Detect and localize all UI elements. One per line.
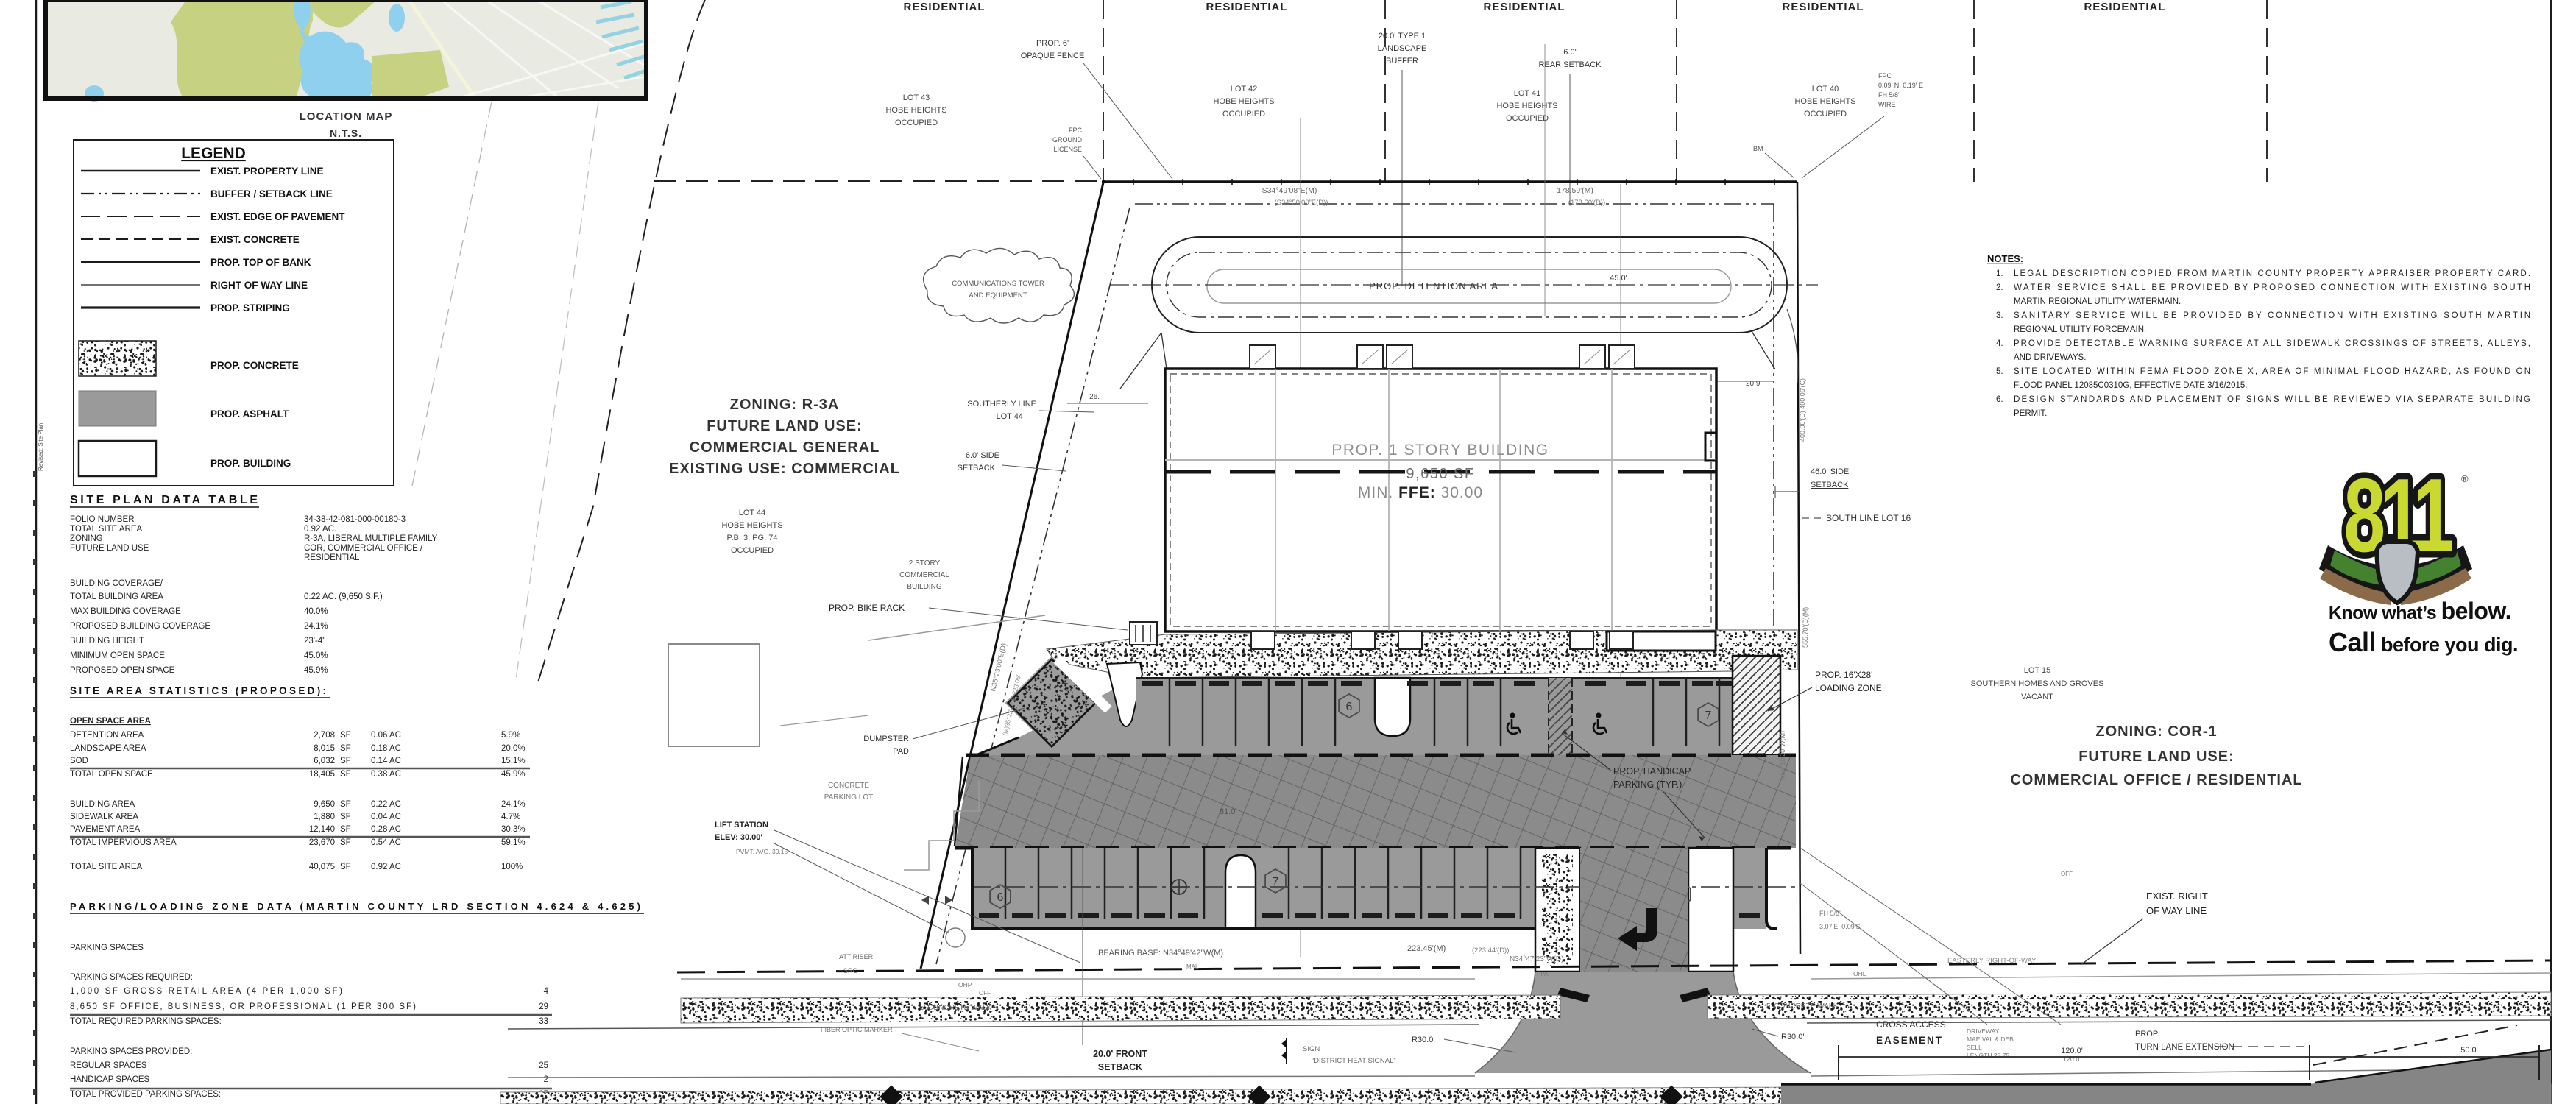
svg-text:6.0': 6.0' — [1563, 48, 1576, 57]
svg-text:24.1%: 24.1% — [304, 622, 328, 631]
svg-text:400.00'(D) 400.06'(C): 400.00'(D) 400.06'(C) — [1799, 378, 1806, 442]
svg-text:CONCRETE: CONCRETE — [828, 782, 869, 790]
svg-text:(178.60'(D)): (178.60'(D)) — [1568, 199, 1605, 207]
svg-text:OFF: OFF — [2061, 871, 2073, 877]
svg-text:EASEMENT: EASEMENT — [1876, 1035, 1943, 1046]
svg-text:5' CONCRETE WALK: 5' CONCRETE WALK — [920, 1004, 991, 1012]
svg-text:“DISTRICT HEAT SIGNAL”: “DISTRICT HEAT SIGNAL” — [1312, 1057, 1396, 1065]
svg-text:PROP. 16'X28': PROP. 16'X28' — [1815, 670, 1872, 680]
svg-text:ELEV: 30.00': ELEV: 30.00' — [715, 833, 762, 842]
svg-text:81.0': 81.0' — [1220, 807, 1237, 816]
svg-text:TOTAL PROVIDED PARKING SPACES:: TOTAL PROVIDED PARKING SPACES: — [70, 1090, 221, 1099]
svg-text:223.45'(M): 223.45'(M) — [1407, 944, 1446, 953]
svg-text:FH 5/8": FH 5/8" — [1878, 91, 1900, 99]
svg-text:LOT 44: LOT 44 — [997, 412, 1024, 421]
svg-text:VACANT: VACANT — [2021, 693, 2053, 701]
svg-text:0.92 AC: 0.92 AC — [371, 863, 401, 871]
svg-text:34-38-42-081-000-00180-3: 34-38-42-081-000-00180-3 — [304, 515, 406, 524]
svg-text:0.38 AC: 0.38 AC — [371, 770, 401, 779]
svg-text:2 STORY: 2 STORY — [909, 559, 941, 567]
svg-text:OCCUPIED: OCCUPIED — [1506, 114, 1549, 123]
svg-text:SRC: SRC — [843, 967, 858, 974]
svg-text:8,015: 8,015 — [314, 744, 335, 753]
svg-text:PARKING SPACES PROVIDED:: PARKING SPACES PROVIDED: — [70, 1047, 192, 1056]
svg-text:45.9%: 45.9% — [501, 770, 526, 779]
svg-text:OCCUPIED: OCCUPIED — [1804, 110, 1847, 118]
svg-text:29: 29 — [539, 1002, 548, 1011]
svg-text:COMMERCIAL OFFICE / RESIDENTIA: COMMERCIAL OFFICE / RESIDENTIAL — [2010, 772, 2302, 788]
svg-text:LEGEND: LEGEND — [181, 145, 246, 162]
svg-text:7: 7 — [1705, 710, 1712, 722]
svg-text:PARKING (TYP.): PARKING (TYP.) — [1613, 779, 1682, 790]
svg-text:REGULAR SPACES: REGULAR SPACES — [70, 1061, 147, 1070]
svg-text:LICENSE: LICENSE — [1053, 146, 1082, 153]
svg-text:45.0%: 45.0% — [304, 651, 328, 660]
svg-text:PROP. CONCRETE: PROP. CONCRETE — [210, 360, 299, 371]
svg-text:5.: 5. — [1996, 367, 2003, 376]
svg-text:PROP. 1 STORY BUILDING: PROP. 1 STORY BUILDING — [1331, 442, 1549, 459]
svg-text:RESIDENTIAL: RESIDENTIAL — [1206, 1, 1287, 13]
svg-text:LOT 15: LOT 15 — [2024, 666, 2051, 675]
svg-text:9,650: 9,650 — [314, 800, 335, 809]
svg-text:MARTIN REGIONAL UTILITY WATERM: MARTIN REGIONAL UTILITY WATERMAIN. — [2014, 297, 2181, 306]
svg-text:AND DRIVEWAYS.: AND DRIVEWAYS. — [2014, 353, 2086, 362]
svg-text:N.T.S.: N.T.S. — [330, 127, 362, 139]
svg-text:20.0' FRONT: 20.0' FRONT — [1093, 1049, 1147, 1059]
svg-text:18,405: 18,405 — [309, 770, 335, 779]
svg-text:OHL: OHL — [1853, 970, 1866, 977]
svg-text:SIGN: SIGN — [1303, 1045, 1320, 1053]
svg-text:REAR SETBACK: REAR SETBACK — [1539, 60, 1602, 69]
svg-text:FLOOD PANEL 12085C0310G, EFFEC: FLOOD PANEL 12085C0310G, EFFECTIVE DATE … — [2014, 381, 2247, 390]
svg-text:PROP. STRIPING: PROP. STRIPING — [210, 302, 290, 314]
svg-text:PROPOSED BUILDING COVERAGE: PROPOSED BUILDING COVERAGE — [70, 622, 210, 631]
svg-text:COMMERCIAL GENERAL: COMMERCIAL GENERAL — [690, 439, 880, 456]
svg-text:LANDSCAPE AREA: LANDSCAPE AREA — [70, 744, 146, 753]
svg-text:BUFFER: BUFFER — [1386, 57, 1418, 66]
svg-text:3.: 3. — [1996, 311, 2003, 320]
svg-text:SF: SF — [340, 800, 351, 809]
svg-text:RESIDENTIAL: RESIDENTIAL — [1483, 1, 1565, 13]
svg-text:20.0%: 20.0% — [501, 744, 526, 753]
svg-text:SF: SF — [340, 757, 351, 765]
svg-text:HOBE HEIGHTS: HOBE HEIGHTS — [1213, 97, 1274, 106]
svg-text:OHP: OHP — [958, 981, 972, 988]
svg-text:PROP. BIKE RACK: PROP. BIKE RACK — [829, 603, 905, 613]
svg-text:PROP. 6': PROP. 6' — [1036, 39, 1069, 48]
svg-text:EXIST. EDGE OF PAVEMENT: EXIST. EDGE OF PAVEMENT — [210, 211, 345, 222]
svg-text:7: 7 — [1273, 876, 1279, 888]
svg-text:R30.0': R30.0' — [1412, 1036, 1434, 1044]
svg-text:OCCUPIED: OCCUPIED — [731, 546, 774, 555]
svg-text:DRIVEWAY: DRIVEWAY — [1967, 1027, 2000, 1035]
svg-text:ZONING: R-3A: ZONING: R-3A — [730, 397, 840, 413]
svg-text:ATT RISER: ATT RISER — [839, 953, 874, 960]
svg-text:TOTAL IMPERVIOUS AREA: TOTAL IMPERVIOUS AREA — [70, 838, 177, 847]
svg-text:BUILDING: BUILDING — [907, 583, 941, 591]
svg-text:SF: SF — [340, 825, 351, 834]
svg-text:RESIDENTIAL: RESIDENTIAL — [304, 553, 360, 562]
svg-text:PAVEMENT AREA: PAVEMENT AREA — [70, 825, 141, 834]
svg-text:12,140: 12,140 — [309, 825, 335, 834]
svg-text:OPEN SPACE AREA: OPEN SPACE AREA — [70, 717, 151, 726]
svg-text:FPC: FPC — [1878, 72, 1892, 79]
svg-text:4.: 4. — [1996, 339, 2003, 348]
svg-text:4.7%: 4.7% — [501, 813, 520, 821]
svg-text:MINIMUM OPEN SPACE: MINIMUM OPEN SPACE — [70, 651, 165, 660]
svg-text:0.18 AC: 0.18 AC — [371, 744, 401, 753]
svg-text:TOTAL SITE AREA: TOTAL SITE AREA — [70, 863, 143, 871]
svg-text:6.0' SIDE: 6.0' SIDE — [966, 451, 999, 460]
svg-text:PROVIDE DETECTABLE WARNING SUR: PROVIDE DETECTABLE WARNING SURFACE AT AL… — [2014, 339, 2530, 348]
svg-text:6,032: 6,032 — [314, 757, 335, 765]
svg-text:555.70'(D)(M): 555.70'(D)(M) — [1802, 607, 1809, 648]
svg-text:LIFT STATION: LIFT STATION — [715, 821, 768, 829]
svg-text:HANDICAP SPACES: HANDICAP SPACES — [70, 1075, 150, 1084]
svg-text:TOTAL OPEN SPACE: TOTAL OPEN SPACE — [70, 770, 153, 779]
svg-text:59.1%: 59.1% — [501, 838, 526, 847]
svg-text:N34°47’23”W(D): N34°47’23”W(D) — [1510, 955, 1563, 963]
svg-text:S34°49’08”E(M): S34°49’08”E(M) — [1262, 186, 1317, 195]
svg-text:GROUND: GROUND — [1052, 136, 1082, 144]
svg-text:BUFFER / SETBACK LINE: BUFFER / SETBACK LINE — [210, 188, 333, 199]
svg-text:FPC: FPC — [1069, 127, 1083, 134]
svg-text:R-3A, LIBERAL MULTIPLE FAMILY: R-3A, LIBERAL MULTIPLE FAMILY — [304, 534, 438, 543]
svg-text:MIN. FFE: 30.00: MIN. FFE: 30.00 — [1358, 484, 1483, 501]
svg-text:COMMERCIAL: COMMERCIAL — [899, 571, 949, 579]
svg-text:SOUTH LINE LOT 16: SOUTH LINE LOT 16 — [1826, 513, 1911, 523]
svg-text:5' CONCRETE WALK: 5' CONCRETE WALK — [1766, 1002, 1838, 1011]
svg-text:HOBE HEIGHTS: HOBE HEIGHTS — [721, 521, 782, 530]
svg-text:NOTES:: NOTES: — [1987, 253, 2023, 264]
svg-text:LANDSCAPE: LANDSCAPE — [1378, 44, 1427, 53]
svg-text:SETBACK: SETBACK — [1811, 481, 1849, 489]
svg-text:ZONING: ZONING — [70, 534, 103, 543]
svg-text:FOLIO NUMBER: FOLIO NUMBER — [70, 515, 135, 524]
svg-text:1.: 1. — [1996, 269, 2003, 278]
svg-text:SF: SF — [340, 744, 351, 753]
svg-text:SF: SF — [340, 770, 351, 779]
svg-text:33: 33 — [539, 1017, 548, 1026]
svg-text:4: 4 — [544, 987, 549, 996]
svg-text:1,880: 1,880 — [314, 813, 335, 821]
svg-text:EXIST. PROPERTY LINE: EXIST. PROPERTY LINE — [210, 166, 324, 177]
svg-text:0.28 AC: 0.28 AC — [371, 825, 401, 834]
svg-text:RIGHT OF WAY LINE: RIGHT OF WAY LINE — [210, 280, 308, 291]
svg-text:120.0': 120.0' — [2061, 1047, 2083, 1055]
svg-text:20.0' TYPE 1: 20.0' TYPE 1 — [1379, 32, 1426, 40]
svg-text:FUTURE LAND USE:: FUTURE LAND USE: — [2078, 749, 2234, 765]
svg-text:0.09' N, 0.19' E: 0.09' N, 0.19' E — [1878, 82, 1923, 89]
svg-text:PROP. TOP OF BANK: PROP. TOP OF BANK — [210, 257, 311, 268]
svg-text:DETENTION AREA: DETENTION AREA — [70, 731, 144, 740]
svg-text:OCCUPIED: OCCUPIED — [1222, 110, 1265, 118]
svg-text:BUILDING COVERAGE/: BUILDING COVERAGE/ — [70, 579, 163, 588]
svg-text:50.0': 50.0' — [2460, 1046, 2478, 1055]
svg-text:(223.44'(D)): (223.44'(D)) — [1472, 946, 1509, 955]
svg-text:6: 6 — [1346, 701, 1353, 713]
svg-text:EXISTING USE: COMMERCIAL: EXISTING USE: COMMERCIAL — [669, 461, 900, 477]
svg-text:45.0': 45.0' — [1610, 274, 1627, 283]
svg-text:23,670: 23,670 — [309, 838, 335, 847]
svg-text:Revised: Site Plan: Revised: Site Plan — [38, 423, 44, 471]
svg-text:®: ® — [2461, 473, 2469, 484]
svg-text:EASTERLY RIGHT-OF-WAY: EASTERLY RIGHT-OF-WAY — [1947, 957, 2037, 965]
svg-text:TOTAL BUILDING AREA: TOTAL BUILDING AREA — [70, 592, 163, 601]
svg-text:RESIDENTIAL: RESIDENTIAL — [1782, 1, 1864, 13]
svg-text:BM: BM — [1753, 145, 1763, 152]
svg-text:PARKING SPACES REQUIRED:: PARKING SPACES REQUIRED: — [70, 973, 193, 982]
svg-text:REGIONAL UTILITY FORCEMAIN.: REGIONAL UTILITY FORCEMAIN. — [2014, 325, 2146, 334]
svg-text:FUTURE LAND USE:: FUTURE LAND USE: — [707, 418, 863, 434]
svg-text:SELL: SELL — [1967, 1044, 1982, 1051]
svg-text:BUILDING AREA: BUILDING AREA — [70, 800, 135, 809]
svg-text:PROP. ASPHALT: PROP. ASPHALT — [210, 408, 289, 420]
svg-text:0.06 AC: 0.06 AC — [371, 731, 401, 740]
svg-text:(S34°50’00”E(D)): (S34°50’00”E(D)) — [1275, 199, 1328, 207]
svg-text:2.: 2. — [1996, 283, 2003, 292]
svg-text:40.0%: 40.0% — [304, 607, 328, 616]
svg-text:PROP. DETENTION AREA: PROP. DETENTION AREA — [1369, 280, 1498, 291]
svg-text:26.: 26. — [1089, 393, 1100, 401]
svg-text:SOUTHERN HOMES AND GROVES: SOUTHERN HOMES AND GROVES — [1971, 679, 2104, 688]
svg-text:SETBACK: SETBACK — [1098, 1062, 1142, 1072]
svg-text:0.22 AC: 0.22 AC — [371, 800, 401, 809]
svg-text:P.B. 3, PG. 74: P.B. 3, PG. 74 — [727, 534, 778, 542]
svg-text:0.22 AC. (9,650 S.F.): 0.22 AC. (9,650 S.F.) — [304, 592, 383, 601]
svg-text:30.3%: 30.3% — [501, 825, 526, 834]
svg-text:SF: SF — [340, 838, 351, 847]
svg-text:6: 6 — [997, 891, 1004, 904]
svg-text:FUTURE LAND USE: FUTURE LAND USE — [70, 544, 149, 553]
svg-text:15.1%: 15.1% — [501, 757, 526, 765]
svg-text:PAD: PAD — [893, 747, 909, 756]
svg-text:OFF: OFF — [979, 990, 991, 997]
svg-text:40,075: 40,075 — [309, 863, 335, 871]
svg-text:OCCUPIED: OCCUPIED — [895, 118, 938, 127]
svg-text:LOT 40: LOT 40 — [1812, 85, 1839, 93]
svg-text:SETBACK: SETBACK — [958, 464, 996, 473]
svg-text:AND EQUIPMENT: AND EQUIPMENT — [969, 291, 1027, 300]
svg-text:100%: 100% — [501, 863, 523, 871]
svg-text:EXIST. CONCRETE: EXIST. CONCRETE — [210, 234, 300, 245]
svg-text:PARKING SPACES: PARKING SPACES — [70, 944, 144, 952]
svg-text:178.59'(M): 178.59'(M) — [1557, 186, 1593, 195]
svg-text:SITE PLAN DATA TABLE: SITE PLAN DATA TABLE — [70, 494, 258, 506]
svg-text:5.9%: 5.9% — [501, 731, 520, 740]
svg-text:MAE VAL & DEB: MAE VAL & DEB — [1967, 1036, 2014, 1043]
svg-text:SF: SF — [340, 863, 351, 871]
svg-text:R30.0': R30.0' — [1781, 1033, 1804, 1041]
svg-text:RESIDENTIAL: RESIDENTIAL — [2084, 1, 2165, 13]
svg-text:6.: 6. — [1996, 395, 2003, 404]
svg-text:PARKING/LOADING ZONE DATA (MAR: PARKING/LOADING ZONE DATA (MARTIN COUNTY… — [70, 901, 640, 912]
svg-text:HOBE HEIGHTS: HOBE HEIGHTS — [1794, 97, 1855, 106]
svg-text:SANITARY SERVICE WILL BE PROVI: SANITARY SERVICE WILL BE PROVIDED BY CON… — [2014, 311, 2530, 320]
svg-text:0.14 AC: 0.14 AC — [371, 757, 401, 765]
svg-text:SF: SF — [340, 731, 351, 740]
svg-text:EXIST. RIGHT: EXIST. RIGHT — [2146, 891, 2208, 902]
svg-text:PARKING LOT: PARKING LOT — [824, 793, 874, 802]
svg-text:SOD: SOD — [70, 757, 88, 765]
svg-text:23'-4": 23'-4" — [304, 637, 325, 645]
svg-text:TURN LANE EXTENSION: TURN LANE EXTENSION — [2135, 1043, 2234, 1052]
svg-text:45.9%: 45.9% — [304, 666, 328, 675]
svg-text:LENGTH 25.75: LENGTH 25.75 — [1967, 1052, 2009, 1059]
svg-text:DUMPSTER: DUMPSTER — [863, 735, 909, 743]
svg-text:SIDEWALK AREA: SIDEWALK AREA — [70, 813, 138, 821]
svg-text:0.04 AC: 0.04 AC — [371, 813, 401, 821]
svg-text:SOUTHERLY LINE: SOUTHERLY LINE — [967, 400, 1036, 408]
svg-text:COR, COMMERCIAL OFFICE /: COR, COMMERCIAL OFFICE / — [304, 544, 423, 553]
svg-text:HOBE HEIGHTS: HOBE HEIGHTS — [1496, 102, 1557, 110]
svg-text:ZONING: COR-1: ZONING: COR-1 — [2095, 723, 2217, 740]
svg-text:BUILDING HEIGHT: BUILDING HEIGHT — [70, 637, 144, 645]
svg-text:LOCATION MAP: LOCATION MAP — [300, 110, 393, 123]
svg-text:MAX BUILDING COVERAGE: MAX BUILDING COVERAGE — [70, 607, 181, 616]
svg-text:COMMUNICATIONS TOWER: COMMUNICATIONS TOWER — [952, 280, 1044, 288]
svg-text:OF WAY LINE: OF WAY LINE — [2146, 905, 2207, 916]
svg-text:LOT 43: LOT 43 — [903, 93, 930, 102]
svg-text:RESIDENTIAL: RESIDENTIAL — [903, 1, 985, 13]
svg-text:BEARING BASE: N34°49’42”W(M): BEARING BASE: N34°49’42”W(M) — [1098, 949, 1223, 958]
svg-text:HOBE HEIGHTS: HOBE HEIGHTS — [885, 106, 946, 115]
svg-text:MAL: MAL — [1186, 963, 1199, 970]
svg-text:LOT 42: LOT 42 — [1231, 85, 1258, 93]
svg-text:FH 5/8”: FH 5/8” — [1819, 910, 1841, 917]
svg-text:PROP. HANDICAP: PROP. HANDICAP — [1613, 766, 1691, 776]
svg-text:46.0' SIDE: 46.0' SIDE — [1811, 467, 1849, 476]
svg-text:SITE LOCATED WITHIN FEMA FLOOD: SITE LOCATED WITHIN FEMA FLOOD ZONE X, A… — [2014, 367, 2530, 376]
svg-text:PERMIT.: PERMIT. — [2014, 409, 2047, 418]
svg-text:LOT 41: LOT 41 — [1514, 89, 1541, 98]
svg-text:2,708: 2,708 — [314, 731, 335, 740]
svg-text:SF: SF — [340, 813, 351, 821]
svg-text:TOTAL SITE AREA: TOTAL SITE AREA — [70, 525, 143, 534]
svg-text:WIRE: WIRE — [1878, 101, 1896, 108]
svg-text:CROSS ACCESS: CROSS ACCESS — [1876, 1019, 1946, 1030]
svg-text:9,650 SF: 9,650 SF — [1406, 466, 1474, 482]
svg-text:TOTAL REQUIRED PARKING SPACES:: TOTAL REQUIRED PARKING SPACES: — [70, 1017, 222, 1026]
svg-text:24.1%: 24.1% — [501, 800, 526, 809]
svg-text:0.92 AC.: 0.92 AC. — [304, 525, 336, 534]
svg-text:PROP.: PROP. — [2135, 1030, 2159, 1038]
svg-text:PROPOSED OPEN SPACE: PROPOSED OPEN SPACE — [70, 666, 175, 675]
svg-text:0.54 AC: 0.54 AC — [371, 838, 401, 847]
svg-text:OPAQUE FENCE: OPAQUE FENCE — [1021, 52, 1085, 60]
svg-text:LOT 44: LOT 44 — [739, 509, 766, 517]
svg-text:25: 25 — [539, 1061, 548, 1070]
svg-text:PPA: PPA — [1537, 971, 1549, 977]
svg-text:PVMT. AVG. 30.15: PVMT. AVG. 30.15 — [736, 848, 788, 855]
svg-text:N55°10’20”W(M): N55°10’20”W(M) — [1779, 731, 1786, 780]
svg-text:2: 2 — [544, 1075, 548, 1084]
svg-text:LOADING ZONE: LOADING ZONE — [1815, 683, 1882, 693]
svg-text:PROP. BUILDING: PROP. BUILDING — [210, 458, 291, 469]
